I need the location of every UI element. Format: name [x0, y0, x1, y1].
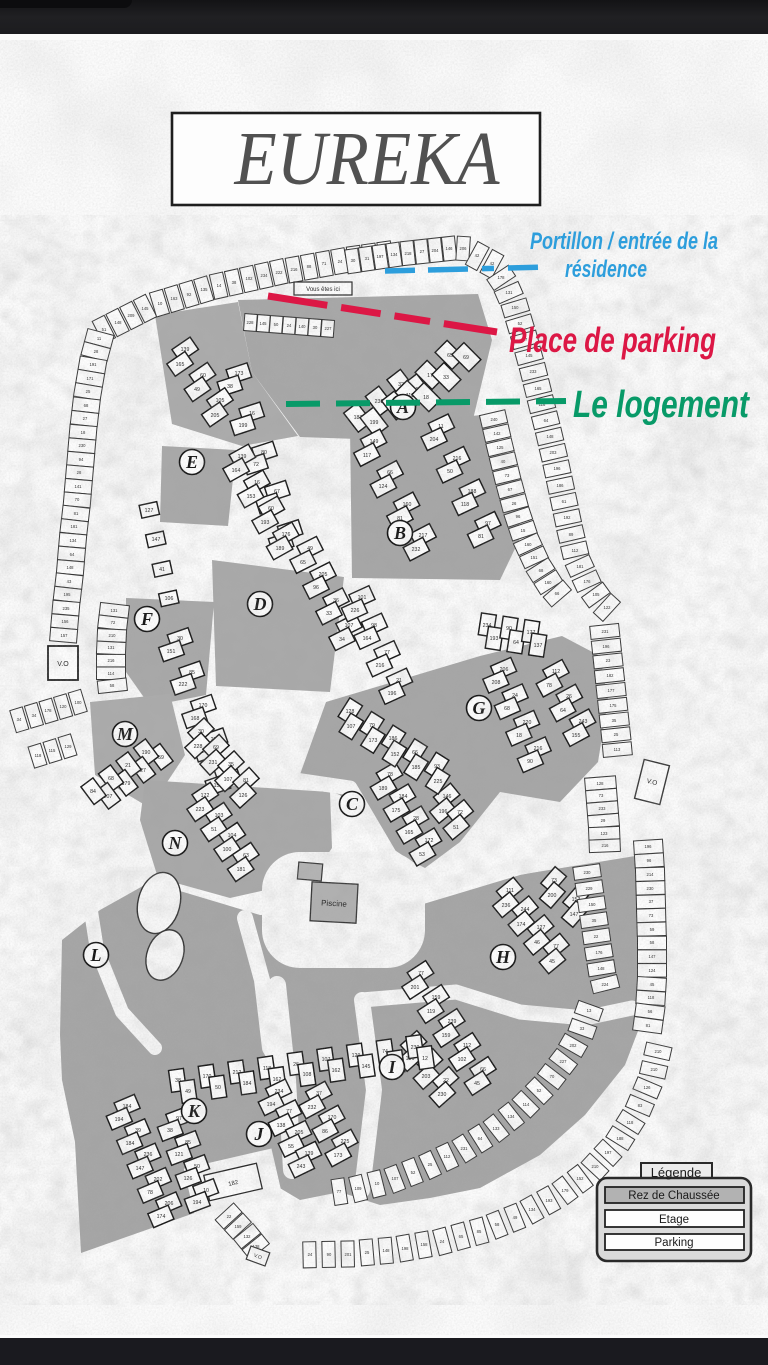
svg-text:Rez de Chaussée: Rez de Chaussée: [628, 1190, 719, 1202]
svg-text:Place de parking: Place de parking: [509, 321, 716, 360]
svg-text:Légende: Légende: [651, 1165, 702, 1180]
svg-text:Etage: Etage: [659, 1214, 689, 1226]
svg-text:Portillon / entrée de la: Portillon / entrée de la: [530, 228, 718, 255]
svg-text:Le logement: Le logement: [573, 384, 750, 426]
svg-text:résidence: résidence: [565, 256, 647, 283]
svg-text:Parking: Parking: [655, 1237, 694, 1249]
svg-text:EUREKA: EUREKA: [234, 117, 500, 201]
